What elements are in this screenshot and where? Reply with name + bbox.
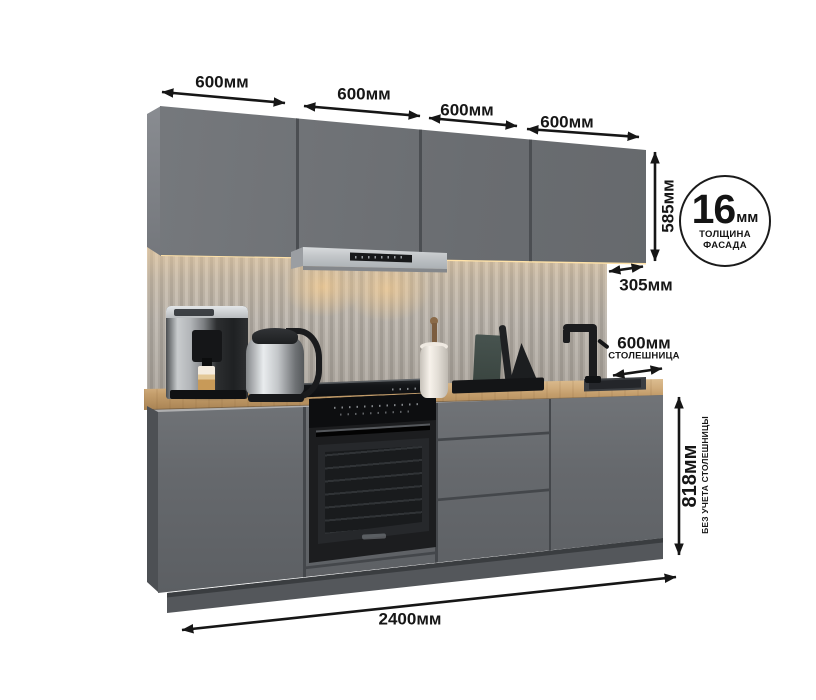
hood-control-panel: [0, 0, 816, 700]
oven-door-glass: [0, 0, 816, 700]
dim-label-cabinet-depth: 305мм: [619, 277, 673, 294]
oven-panel-indicators: [334, 403, 418, 409]
faucet-base: [585, 376, 601, 383]
kettle-body: [246, 338, 304, 396]
dim-label-total-width: 2400мм: [379, 611, 442, 628]
range-hood-underside: [0, 0, 816, 700]
kettle-base: [248, 394, 304, 402]
oven-brand-logo: [362, 533, 386, 539]
oven-drawer-gap: [0, 0, 816, 700]
sink-basin: [0, 0, 816, 700]
drip-tray: [170, 390, 246, 399]
kettle-lid: [252, 328, 298, 344]
towel-roll: [420, 346, 448, 398]
built-in-oven: [0, 0, 816, 700]
induction-hob: [0, 0, 816, 700]
facade-thickness-badge: 16 мм ТОЛЩИНА ФАСАДА: [679, 175, 771, 267]
badge-caption-line1: ТОЛЩИНА: [699, 229, 751, 241]
faucet: [560, 320, 606, 384]
dim-label-width-4: 600мм: [540, 114, 594, 131]
hob-edge-highlight: [0, 0, 816, 700]
sink: [0, 0, 816, 700]
faucet-spout-tip: [563, 330, 570, 343]
dim-label-width-3: 600мм: [440, 102, 494, 119]
base-door-gap: [435, 403, 438, 565]
base-door-gap: [303, 407, 306, 579]
dim-label-countertop-note: СТОЛЕШНИЦА: [608, 351, 679, 361]
coffee-machine-display: [174, 309, 214, 316]
backsplash-panel: [0, 0, 816, 700]
hob-controls: [392, 388, 418, 391]
base-door-gap: [549, 399, 552, 551]
wall-cabinets: [0, 0, 816, 700]
paper-towel-holder: [420, 317, 448, 398]
oven-control-panel: [0, 0, 816, 700]
dim-label-base-height-note: БЕЗ УЧЕТА СТОЛЕШНИЦЫ: [701, 416, 710, 534]
dim-label-cabinet-height: 585мм: [660, 179, 677, 233]
wall-door-gap: [529, 138, 532, 262]
dim-label-base-height: 818мм: [680, 445, 700, 508]
wall-cabinet-side: [0, 0, 816, 700]
kitchen-render: [0, 0, 816, 700]
wall-door-gap: [419, 128, 422, 260]
base-cabinets: [0, 0, 816, 700]
badge-value: 16: [692, 192, 736, 227]
drawer-gap: [0, 0, 816, 700]
oven-panel-indicators: [340, 410, 412, 415]
oven-handle: [0, 0, 816, 700]
cutting-board-organizer: [452, 325, 544, 393]
wall-door-gap: [296, 117, 299, 258]
faucet-stem: [589, 327, 597, 379]
dim-label-width-1: 600мм: [195, 74, 249, 91]
dim-label-width-2: 600мм: [337, 86, 391, 103]
coffee-spout: [202, 358, 212, 366]
dim-label-countertop-depth: 600мм: [617, 335, 671, 352]
base-cabinet-side: [0, 0, 816, 700]
plinth: [0, 0, 816, 700]
oven-handle-highlight: [0, 0, 816, 700]
oven-door-glass-inner: [0, 0, 816, 700]
organizer-base: [452, 377, 544, 393]
plinth-shadow: [0, 0, 816, 700]
range-hood: [0, 0, 816, 700]
electric-kettle: [246, 326, 320, 406]
kitchen-dimension-diagram: 600мм 600мм 600мм 600мм 585мм 305мм 600м…: [0, 0, 816, 700]
range-hood-side: [0, 0, 816, 700]
countertop: [0, 0, 816, 700]
faucet-lever: [597, 338, 609, 349]
drawer-gap: [0, 0, 816, 700]
badge-caption-line2: ФАСАДА: [703, 240, 747, 252]
led-strip: [0, 0, 816, 700]
badge-unit: мм: [736, 212, 758, 225]
coffee-machine: [166, 306, 248, 399]
countertop-shadow: [0, 0, 816, 700]
badge-value-row: 16 мм: [692, 192, 759, 227]
